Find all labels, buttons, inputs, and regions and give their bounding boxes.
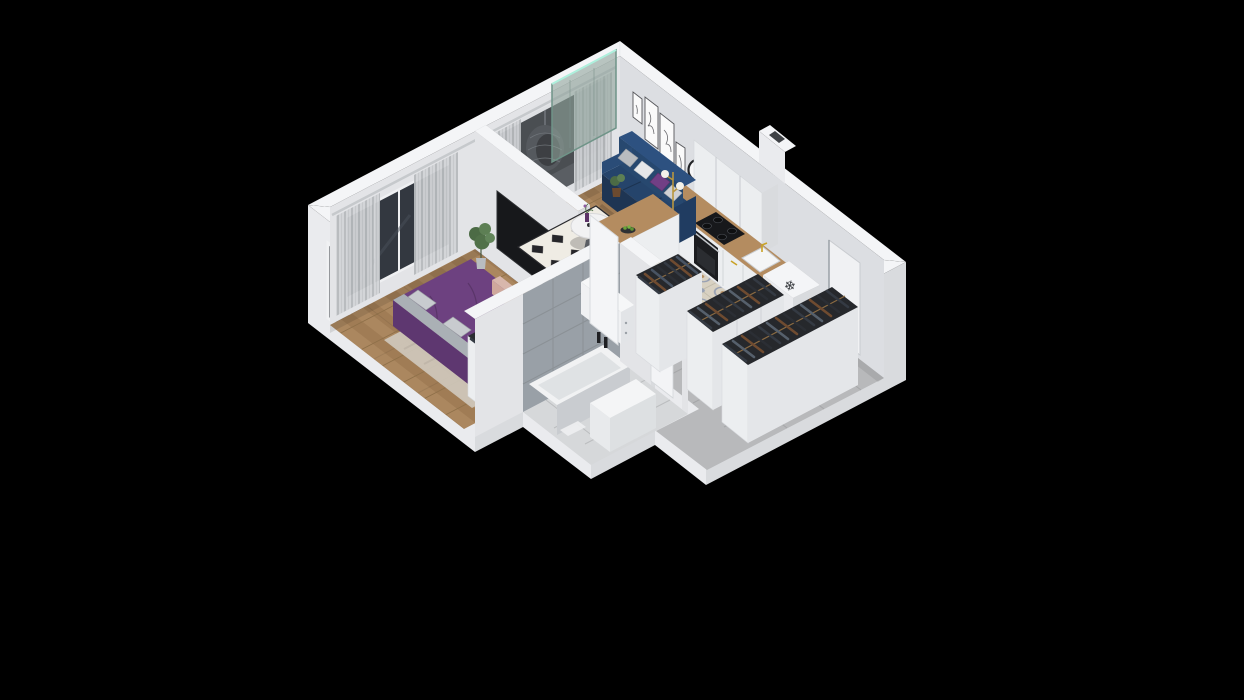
apple-1 xyxy=(623,226,627,230)
burner-1 xyxy=(703,223,712,229)
apartment-render: 3D isometric apartment floor plan render xyxy=(0,0,1244,700)
plant-pot xyxy=(476,258,486,269)
burner-4 xyxy=(728,228,737,234)
floorplan-svg: 3D isometric apartment floor plan render xyxy=(0,0,1244,700)
lamp-globe-1 xyxy=(661,170,669,178)
dresser-knob-2 xyxy=(625,332,627,334)
burner-3 xyxy=(718,234,727,240)
side-plant-leaf-2 xyxy=(617,174,625,182)
burner-2 xyxy=(714,217,723,223)
upper-cabinet-side xyxy=(762,184,778,253)
bedroom-door-leaf xyxy=(590,215,618,345)
bath-candle-2 xyxy=(604,337,608,348)
vase-flower xyxy=(584,205,587,208)
apple-3 xyxy=(630,227,634,231)
plant-leaves-4 xyxy=(485,233,495,243)
dresser-knob-1 xyxy=(625,322,627,324)
bath-candle-1 xyxy=(597,332,601,343)
table-vase xyxy=(585,213,589,222)
apple-2 xyxy=(627,225,631,229)
lamp-globe-2 xyxy=(676,182,684,190)
side-plant-pot xyxy=(612,188,621,197)
